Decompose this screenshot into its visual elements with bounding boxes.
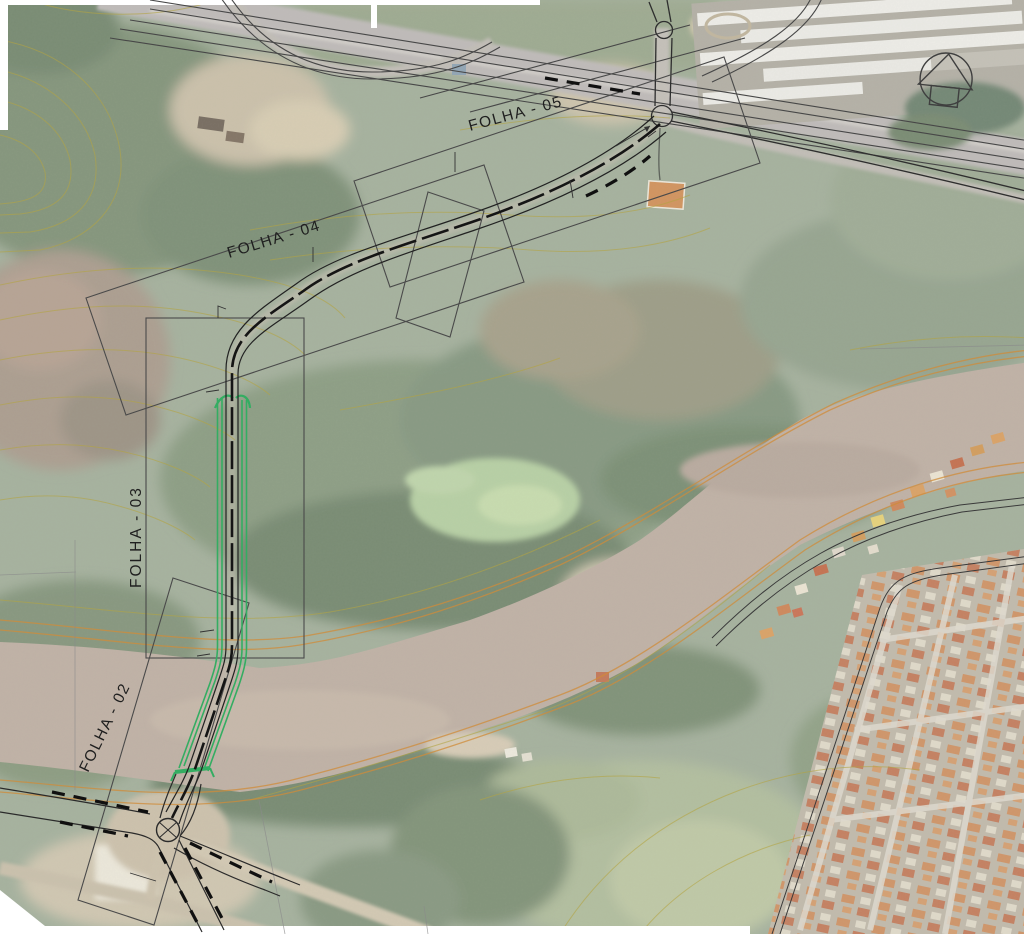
aerial-basemap	[0, 0, 1024, 934]
sheet-label-folha-03: FOLHA - 03	[128, 486, 145, 588]
plan-sheet: FOLHA - 05 FOLHA - 04 FOLHA - 03 FOLHA -…	[0, 0, 1024, 934]
map-canvas: FOLHA - 05 FOLHA - 04 FOLHA - 03 FOLHA -…	[0, 0, 1024, 934]
